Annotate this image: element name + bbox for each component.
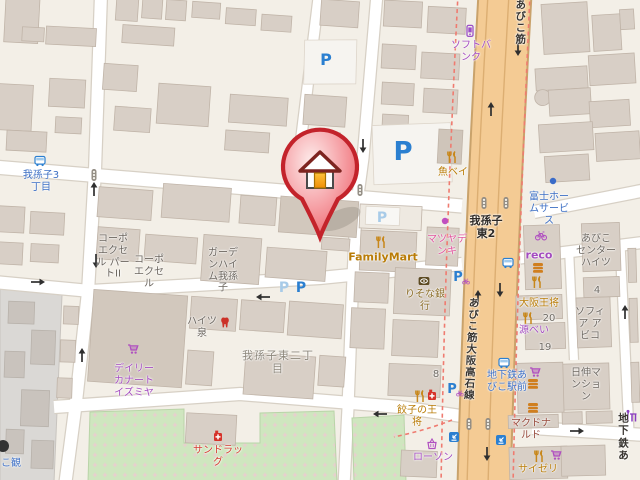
subway-entrance-icon[interactable] (496, 435, 506, 445)
poi-label-uobei[interactable]: 魚ベイ (438, 167, 468, 179)
poi-label-matsuya-denki[interactable]: マツヤデ ンキ (427, 234, 467, 258)
poi-label-osaka-ohsho[interactable]: 大阪王将 (519, 298, 559, 310)
poi-dot-icon[interactable] (550, 178, 556, 184)
poi-label-partial-left[interactable]: こ観 (1, 458, 21, 470)
bus-stop-label-chikatetsu-abiko-ekimae[interactable]: 地下鉄あ びこ駅前 (487, 370, 527, 394)
parking-marker[interactable]: P (279, 280, 289, 296)
poi-label-fuji-home-service[interactable]: 富士ホー ムサービ ス (529, 191, 569, 226)
building-label-corpo-excel: コーポ エクセ ル (134, 254, 164, 289)
building-label-garden-heim-abiko: ガーデ ンハイ ム我孫 子 (208, 247, 238, 294)
block-number: 4 (594, 285, 600, 297)
building-label-sophia-abiko: ソフィ ア ア ビコ (575, 306, 605, 341)
map-viewport[interactable]: P P P P P P P ソフトバ ンク 魚ベイ 富士ホー ムサービ ス 我孫… (0, 0, 640, 480)
building-label-heights-izumi: ハイツ 泉 (187, 316, 217, 340)
bicycle-parking-marker[interactable]: P (447, 382, 457, 397)
fastfood-icon[interactable] (528, 403, 538, 413)
building-label-corpo-excel-part2: コーポ エクセ ル パー トII (96, 233, 129, 280)
poi-label-daily-qanat-izumiya[interactable]: デイリー カナート イズミヤ (114, 363, 154, 398)
block-number: 19 (539, 342, 552, 354)
poi-label-resona-bank[interactable]: りそな銀 行 (405, 289, 445, 313)
poi-label-reco[interactable]: reco (526, 250, 553, 263)
poi-label-softbank[interactable]: ソフトバ ンク (451, 40, 491, 64)
parking-marker[interactable]: P (296, 280, 306, 296)
subway-entrance-icon[interactable] (449, 432, 459, 442)
poi-label-saizeriya[interactable]: サイゼリ (518, 464, 558, 476)
poi-label-familymart[interactable]: FamilyMart (348, 252, 418, 265)
block-number: 20 (543, 313, 556, 325)
bank-icon[interactable] (419, 277, 430, 285)
poi-label-genbei[interactable]: 源べい (519, 325, 549, 337)
bus-stop-icon[interactable] (503, 259, 513, 269)
district-label-abiko-higashi-2chome: 我孫子東二丁 目 (242, 350, 314, 376)
station-label-chikatetsu[interactable]: 地下鉄あ (616, 412, 632, 462)
bus-stop-icon[interactable] (35, 157, 45, 167)
poi-label-mcdonalds[interactable]: マクドナ ルド (511, 418, 551, 442)
block-number: 8 (433, 369, 439, 381)
parking-marker[interactable]: P (320, 50, 332, 69)
building-label-abiko-center-heights: あびこ センター ハイツ (576, 233, 616, 268)
fastfood-icon[interactable] (528, 379, 538, 389)
poi-dot-icon[interactable] (442, 218, 448, 224)
parking-marker[interactable]: P (377, 210, 387, 226)
bus-stop-label-abiko3-chome[interactable]: 我孫子3 丁目 (23, 170, 59, 194)
poi-label-gyoza-no-ohsho[interactable]: 餃子の王 将 (397, 405, 437, 429)
road-label-abikosuji: あびこ筋 (514, 0, 526, 45)
intersection-label-abiko-higashi2: 我孫子 東2 (470, 215, 503, 241)
building-label-nisshin-mansion: 日伸マ ンショ ン (571, 367, 601, 402)
bus-stop-icon[interactable] (499, 359, 509, 369)
bicycle-parking-marker[interactable]: P (453, 270, 463, 285)
poi-label-lawson[interactable]: ローソン (413, 452, 453, 464)
fastfood-icon[interactable] (533, 263, 543, 273)
parking-marker[interactable]: P (393, 137, 412, 167)
poi-label-sundrug[interactable]: サンドラッ グ (193, 445, 243, 469)
